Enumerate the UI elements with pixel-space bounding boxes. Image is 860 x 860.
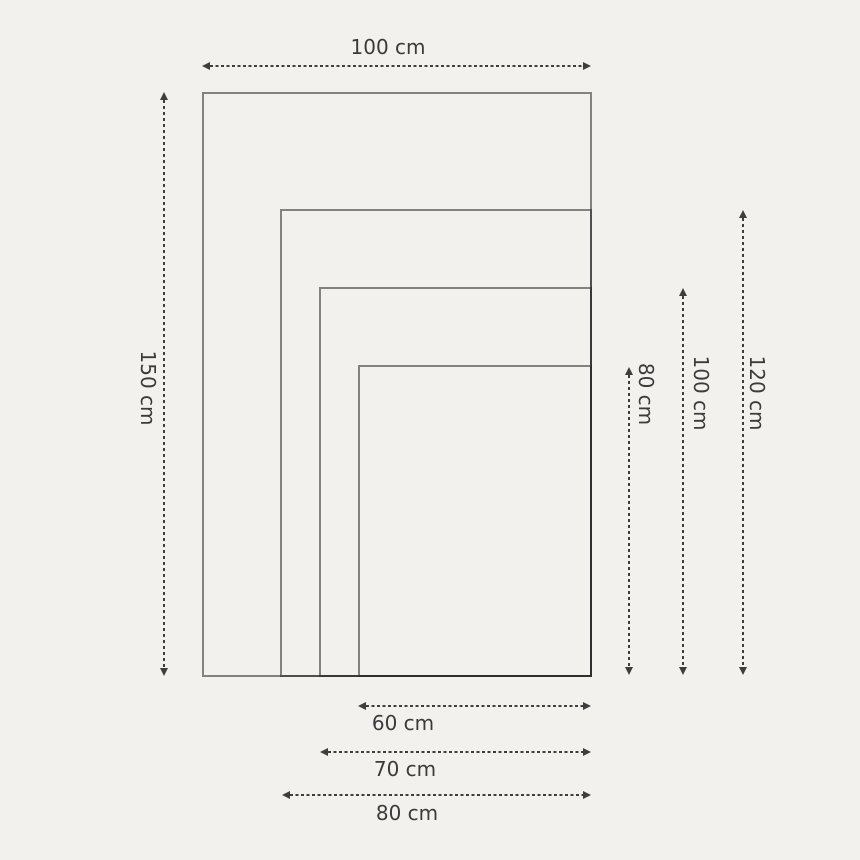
arrowhead-up-icon <box>625 367 633 375</box>
dimension-label-height-150: 150 cm <box>138 350 158 425</box>
width-arrow-100 <box>202 61 591 71</box>
size-diagram: 100 cm 150 cm 80 cm 100 cm 120 cm 60 cm … <box>0 0 860 860</box>
dashed-line <box>163 100 165 668</box>
dashed-line <box>742 218 744 667</box>
arrowhead-up-icon <box>160 92 168 100</box>
arrowhead-right-icon <box>583 748 591 756</box>
arrowhead-left-icon <box>320 748 328 756</box>
arrowhead-down-icon <box>625 667 633 675</box>
rect-60x80 <box>358 365 592 677</box>
arrowhead-right-icon <box>583 791 591 799</box>
dashed-line <box>290 794 583 796</box>
dashed-line <box>328 751 583 753</box>
dashed-line <box>210 65 583 67</box>
dimension-label-height-80: 80 cm <box>636 363 656 425</box>
arrowhead-down-icon <box>679 667 687 675</box>
dimension-label-height-100: 100 cm <box>691 355 711 430</box>
dimension-label-width-80: 80 cm <box>376 803 438 823</box>
dashed-line <box>628 375 630 667</box>
arrowhead-right-icon <box>583 62 591 70</box>
arrowhead-left-icon <box>358 702 366 710</box>
arrowhead-down-icon <box>160 668 168 676</box>
width-arrow-80 <box>282 790 591 800</box>
dashed-line <box>682 296 684 667</box>
arrowhead-left-icon <box>202 62 210 70</box>
width-arrow-70 <box>320 747 591 757</box>
height-arrow-150 <box>159 92 169 676</box>
width-arrow-60 <box>358 701 591 711</box>
dimension-label-width-100: 100 cm <box>350 37 425 57</box>
dimension-label-height-120: 120 cm <box>747 355 767 430</box>
arrowhead-right-icon <box>583 702 591 710</box>
arrowhead-up-icon <box>739 210 747 218</box>
height-arrow-100 <box>678 288 688 675</box>
arrowhead-left-icon <box>282 791 290 799</box>
height-arrow-120 <box>738 210 748 675</box>
dashed-line <box>366 705 583 707</box>
arrowhead-up-icon <box>679 288 687 296</box>
height-arrow-80 <box>624 367 634 675</box>
dimension-label-width-60: 60 cm <box>372 713 434 733</box>
dimension-label-width-70: 70 cm <box>374 759 436 779</box>
arrowhead-down-icon <box>739 667 747 675</box>
